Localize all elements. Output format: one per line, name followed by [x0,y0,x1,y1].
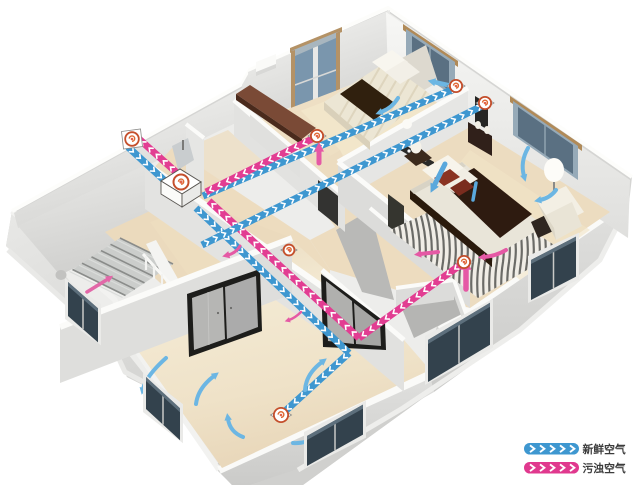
svg-text:新鲜空气: 新鲜空气 [583,442,626,456]
svg-text:污浊空气: 污浊空气 [583,461,626,475]
